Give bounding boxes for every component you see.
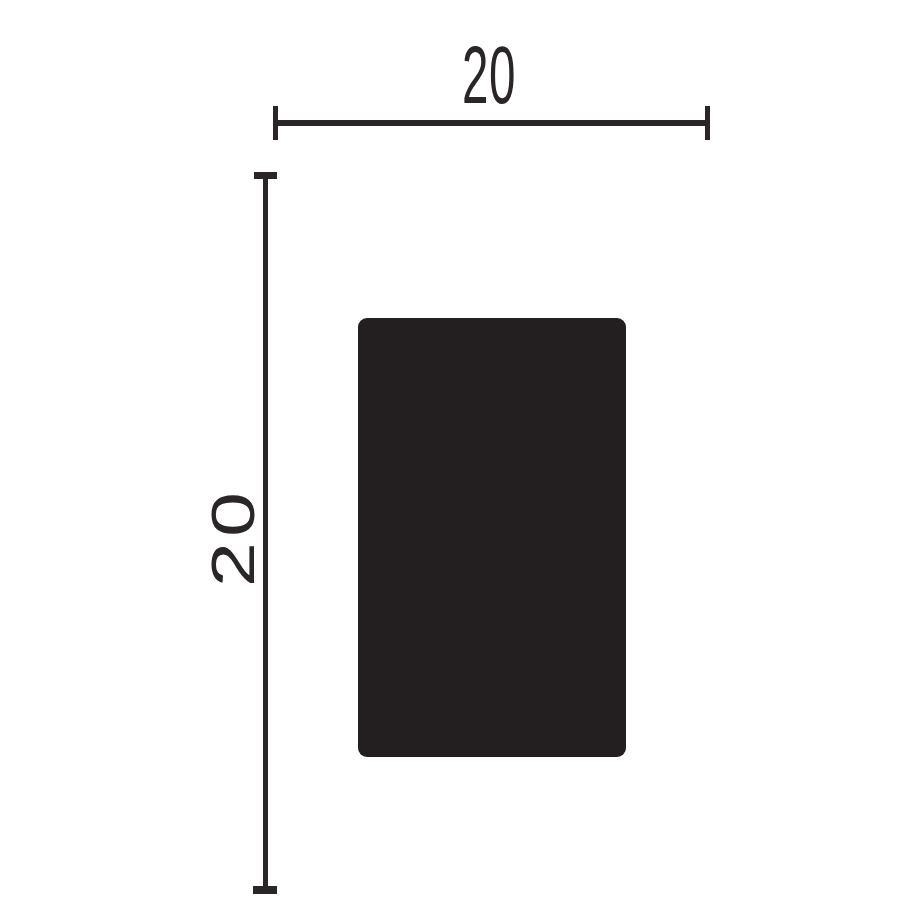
width-dimension-line: [275, 120, 708, 126]
technical-drawing-canvas: 20 20: [0, 0, 900, 900]
height-dimension-line: [263, 175, 268, 890]
width-dimension-tick-right: [705, 106, 710, 140]
profile-cross-section-rectangle: [358, 318, 626, 757]
width-dimension-label: 20: [462, 34, 516, 116]
height-dimension-tick-top: [254, 172, 277, 179]
height-dimension-label: 20: [203, 487, 264, 587]
width-dimension-tick-left: [273, 106, 278, 140]
height-dimension-tick-bottom: [253, 886, 277, 894]
